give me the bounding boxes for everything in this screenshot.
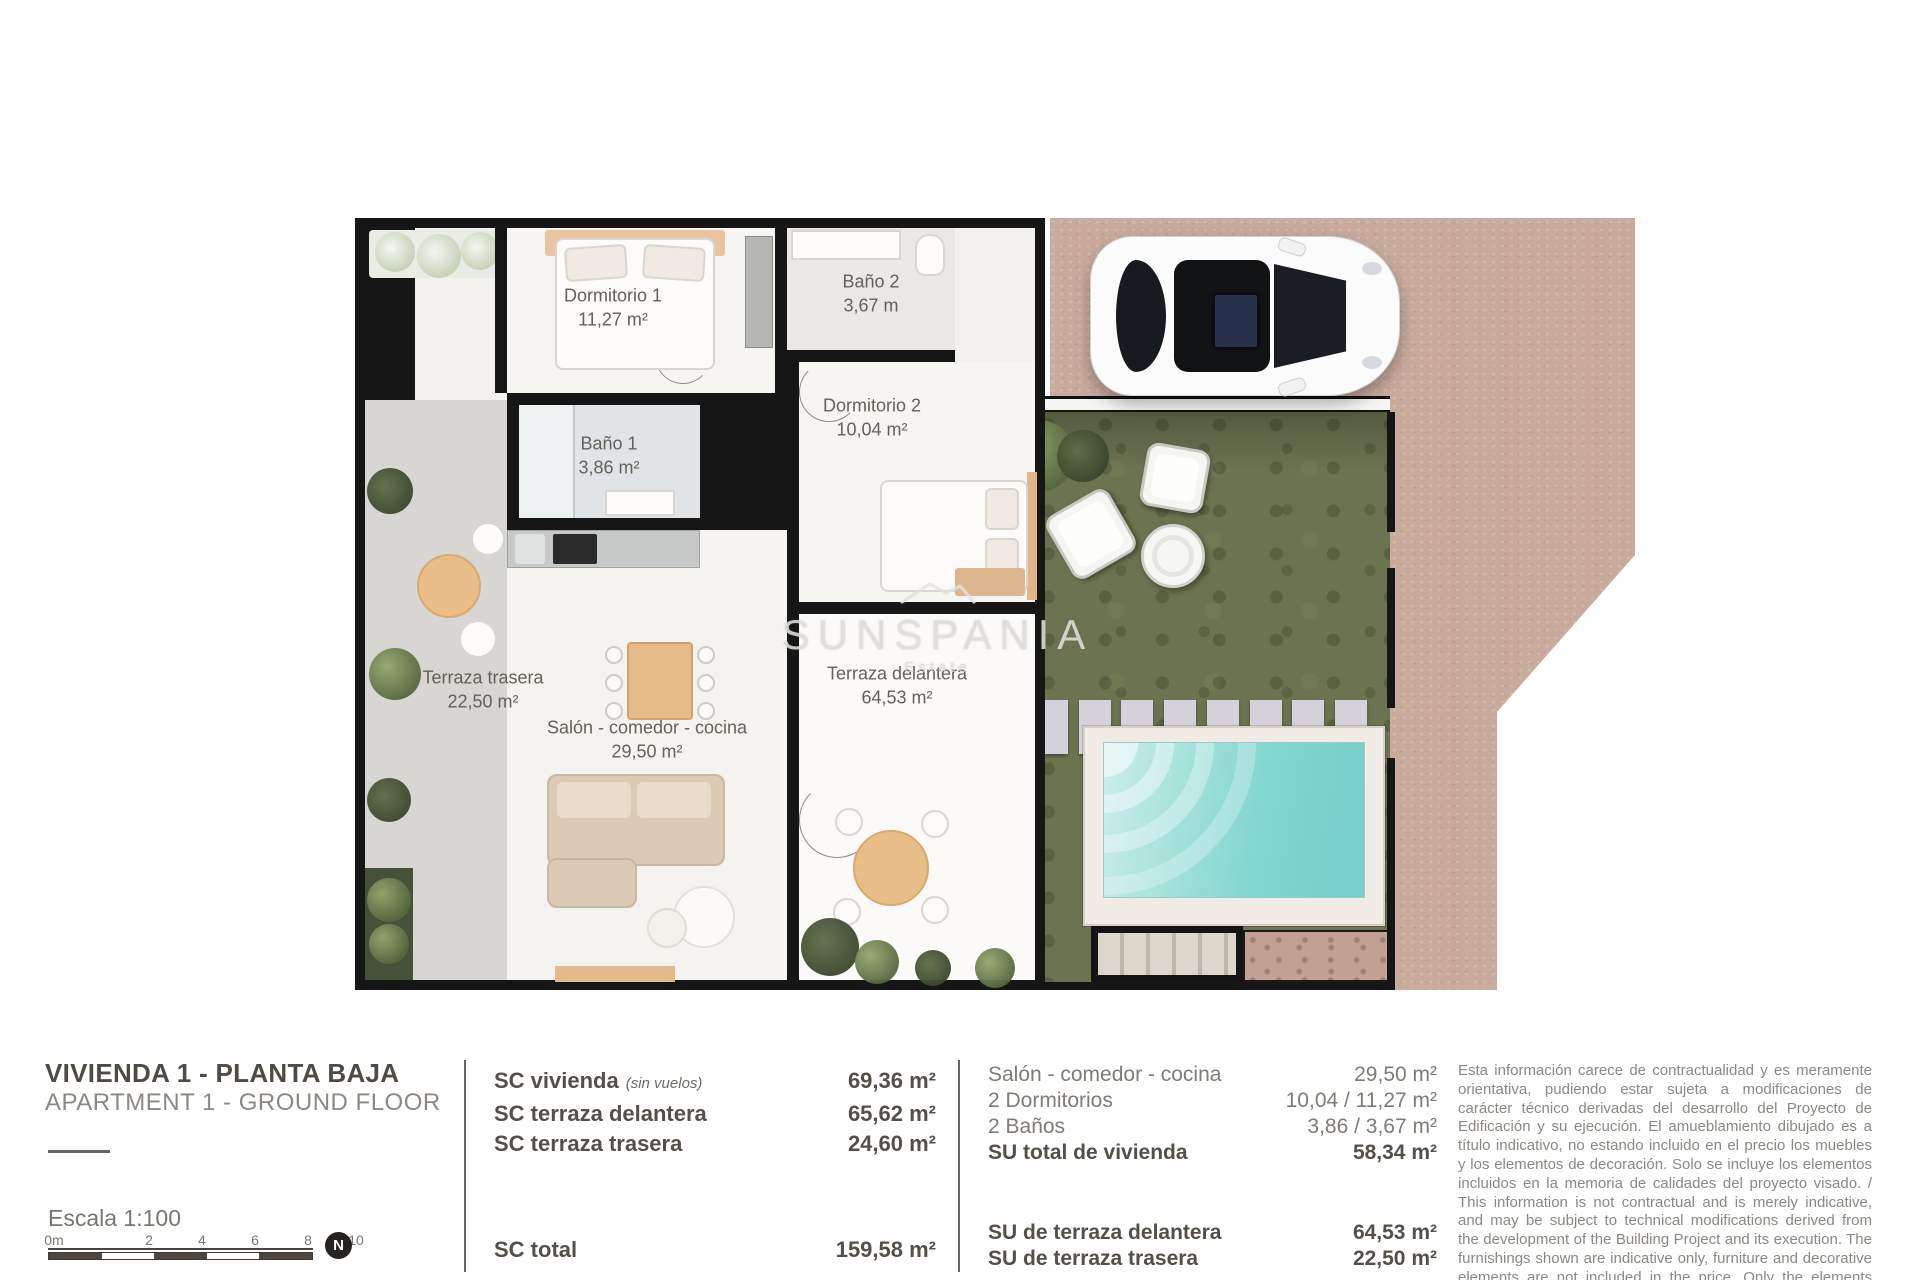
terrace-plant <box>915 950 951 986</box>
terrace-plant <box>367 778 411 822</box>
sofa-cushion <box>557 782 631 818</box>
room-name: Salón - comedor - cocina <box>547 716 747 740</box>
terrace-plant <box>367 468 413 514</box>
room-area: 22,50 m² <box>422 690 543 714</box>
su-row-value: 29,50 m² <box>1354 1062 1437 1088</box>
car-headlight <box>1362 262 1382 275</box>
kitchen-sink <box>515 534 545 564</box>
exterior-stairs <box>1091 926 1243 982</box>
room-name: Baño 1 <box>578 432 639 456</box>
sc-total-row: SC total 159,58 m² <box>494 1235 936 1265</box>
terrace-chair <box>459 620 497 658</box>
sc-row: SC terraza delantera 65,62 m² <box>494 1099 936 1129</box>
su-terrace-label: SU de terraza trasera <box>988 1246 1198 1272</box>
su-terrace-label: SU de terraza delantera <box>988 1220 1221 1246</box>
dining-table <box>627 642 693 720</box>
scale-tick: 4 <box>198 1232 206 1248</box>
room-label-terraza-trasera: Terraza trasera 22,50 m² <box>422 666 543 715</box>
washbasin <box>605 490 675 516</box>
room-label-dormitorio-1: Dormitorio 1 11,27 m² <box>564 284 662 333</box>
scale-bar-line <box>48 1248 313 1250</box>
tv-bench <box>555 966 675 982</box>
scale-segment <box>207 1253 260 1259</box>
sc-row-label: SC terraza trasera <box>494 1129 682 1159</box>
room-area: 29,50 m² <box>547 740 747 764</box>
flowers <box>375 232 415 272</box>
pouf <box>647 908 687 948</box>
terrace-plant <box>369 924 409 964</box>
pillow <box>642 244 706 282</box>
armchair-seat <box>1055 498 1126 569</box>
terrace-chair <box>835 808 863 836</box>
room-name: Terraza trasera <box>422 666 543 690</box>
wall <box>507 518 712 530</box>
roof-icon <box>896 576 980 606</box>
wall <box>507 400 519 530</box>
car-top-view <box>1090 236 1400 396</box>
wall <box>1387 758 1395 982</box>
scale-tick: 0m <box>44 1232 63 1248</box>
sc-label-note: (sin vuelos) <box>626 1075 703 1092</box>
room-area: 11,27 m² <box>564 308 662 332</box>
wall <box>507 393 723 405</box>
su-row: Salón - comedor - cocina 29,50 m² <box>988 1062 1437 1088</box>
sc-row: SC vivienda(sin vuelos) 69,36 m² <box>494 1066 936 1099</box>
car-headlight <box>1362 356 1382 369</box>
sc-row: SC terraza trasera 24,60 m² <box>494 1129 936 1159</box>
dining-chair <box>605 646 623 664</box>
garden-round-table <box>1141 524 1205 588</box>
su-terrace-value: 64,53 m² <box>1353 1220 1437 1246</box>
sc-row-value: 24,60 m² <box>848 1129 936 1159</box>
car-sunroof <box>1212 292 1260 350</box>
sheet-title: VIVIENDA 1 - PLANTA BAJA <box>45 1058 399 1089</box>
pillow <box>564 244 628 282</box>
terrace-plant <box>855 940 899 984</box>
sc-row-value: 65,62 m² <box>848 1099 936 1129</box>
room-name: Dormitorio 2 <box>823 394 921 418</box>
wardrobe <box>745 236 773 348</box>
room-area: 3,86 m² <box>578 456 639 480</box>
room-label-bano-2: Baño 2 3,67 m <box>842 270 899 319</box>
su-terrace-row: SU de terraza delantera 64,53 m² <box>988 1220 1437 1246</box>
scale-segment <box>259 1253 312 1259</box>
sc-total-value: 159,58 m² <box>836 1235 936 1265</box>
sc-total-label: SC total <box>494 1235 577 1265</box>
watermark: SUNSPANIA Estate <box>765 576 1110 676</box>
dining-chair <box>697 646 715 664</box>
table-ring <box>1152 535 1194 577</box>
su-total-value: 58,34 m² <box>1353 1140 1437 1166</box>
bathroom-counter <box>791 230 901 260</box>
wall <box>787 858 799 980</box>
stove <box>553 534 597 564</box>
room-area: 10,04 m² <box>823 418 921 442</box>
room-name: Baño 2 <box>842 270 899 294</box>
scale-tick: 2 <box>145 1232 153 1248</box>
watermark-brand: SUNSPANIA <box>765 611 1110 659</box>
column-divider <box>464 1060 466 1272</box>
su-row: 2 Baños 3,86 / 3,67 m² <box>988 1114 1437 1140</box>
dining-chair <box>605 674 623 692</box>
flowers <box>461 232 499 270</box>
wall <box>755 393 787 405</box>
rock-patch <box>1243 930 1389 982</box>
room-area: 3,67 m <box>842 294 899 318</box>
room-area: 64,53 m² <box>827 686 967 710</box>
terrace-round-table <box>853 830 929 906</box>
sofa-cushion <box>637 782 711 818</box>
scale-segment <box>49 1253 102 1259</box>
wall <box>787 350 955 362</box>
sheet-subtitle: APARTMENT 1 - GROUND FLOOR <box>45 1089 441 1117</box>
su-row-label: 2 Baños <box>988 1114 1065 1140</box>
su-terrace-row: SU de terraza trasera 22,50 m² <box>988 1246 1437 1272</box>
sc-row-label: SC terraza delantera <box>494 1099 707 1129</box>
wall <box>495 228 507 393</box>
floor-plan-sheet: Dormitorio 1 11,27 m² Baño 2 3,67 m Baño… <box>0 0 1920 1280</box>
su-row-label: 2 Dormitorios <box>988 1088 1113 1114</box>
watermark-sub: Estate <box>765 659 1110 676</box>
su-total-row: SU total de vivienda 58,34 m² <box>988 1140 1437 1166</box>
scale-label: Escala 1:100 <box>48 1205 181 1232</box>
su-areas-column: Salón - comedor - cocina 29,50 m² 2 Dorm… <box>988 1062 1437 1272</box>
wall <box>775 228 787 358</box>
column-divider <box>958 1060 960 1272</box>
su-row-label: Salón - comedor - cocina <box>988 1062 1221 1088</box>
terrace-plant <box>975 948 1015 988</box>
scale-segment <box>102 1253 155 1259</box>
sc-label-text: SC vivienda <box>494 1068 619 1093</box>
title-divider <box>48 1150 110 1153</box>
terrace-chair <box>921 896 949 924</box>
sofa-chaise <box>547 858 637 908</box>
pillow <box>985 488 1019 530</box>
wall <box>700 400 712 530</box>
flowers <box>417 234 461 278</box>
terrace-chair <box>471 522 505 556</box>
scale-tick: 8 <box>304 1232 312 1248</box>
scale-tick: 6 <box>251 1232 259 1248</box>
garden-armchair <box>1138 441 1212 515</box>
floor-plan: Dormitorio 1 11,27 m² Baño 2 3,67 m Baño… <box>355 218 1635 990</box>
swimming-pool <box>1103 742 1365 898</box>
su-row-value: 10,04 / 11,27 m² <box>1286 1088 1437 1114</box>
legal-disclaimer: Esta información carece de contractualid… <box>1458 1062 1872 1280</box>
north-compass-icon: N <box>325 1232 352 1259</box>
su-row: 2 Dormitorios 10,04 / 11,27 m² <box>988 1088 1437 1114</box>
scale-ticks: 0m 2 4 6 8 10 <box>48 1232 318 1248</box>
terrace-table <box>417 554 481 618</box>
scale-segment <box>154 1253 207 1259</box>
terrace-plant <box>367 878 411 922</box>
terrace-plant <box>369 648 421 700</box>
room-label-dormitorio-2: Dormitorio 2 10,04 m² <box>823 394 921 443</box>
terrace-plant <box>801 918 859 976</box>
su-total-label: SU total de vivienda <box>988 1140 1188 1166</box>
room-label-bano-1: Baño 1 3,86 m² <box>578 432 639 481</box>
su-terrace-value: 22,50 m² <box>1353 1246 1437 1272</box>
room-label-salon: Salón - comedor - cocina 29,50 m² <box>547 716 747 765</box>
wall <box>1387 412 1395 532</box>
scale-bar: 0m 2 4 6 8 10 <box>48 1232 328 1262</box>
room-name: Dormitorio 1 <box>564 284 662 308</box>
garden-plant <box>1057 430 1109 482</box>
su-row-value: 3,86 / 3,67 m² <box>1307 1114 1437 1140</box>
armchair-seat <box>1150 453 1201 504</box>
sc-row-value: 69,36 m² <box>848 1066 936 1096</box>
scale-bar-segments <box>48 1252 313 1260</box>
toilet <box>915 234 945 276</box>
dining-chair <box>697 674 715 692</box>
shower <box>519 405 575 518</box>
sc-row-label: SC vivienda(sin vuelos) <box>494 1066 702 1099</box>
terrace-chair <box>921 810 949 838</box>
sc-areas-column: SC vivienda(sin vuelos) 69,36 m² SC terr… <box>494 1066 936 1265</box>
car-windshield <box>1274 264 1346 368</box>
wall <box>1387 568 1395 708</box>
